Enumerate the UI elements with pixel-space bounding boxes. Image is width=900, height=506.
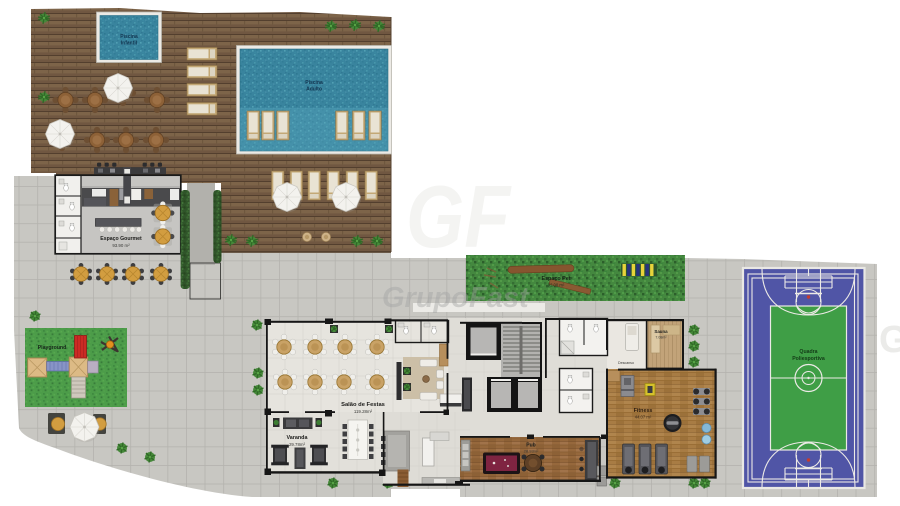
svg-text:Espaço Gourmet: Espaço Gourmet [100, 236, 142, 242]
svg-text:Varanda: Varanda [287, 435, 309, 441]
svg-text:Poliesportiva: Poliesportiva [792, 356, 825, 362]
svg-text:Quadra: Quadra [799, 349, 817, 355]
svg-text:29.78m²: 29.78m² [289, 442, 306, 447]
svg-text:Fitness: Fitness [634, 408, 653, 414]
svg-text:Piscina: Piscina [120, 34, 138, 40]
svg-text:GrupoFast: GrupoFast [382, 282, 530, 314]
svg-text:93.90 m²: 93.90 m² [112, 243, 130, 248]
svg-text:92.00 m²: 92.00 m² [548, 283, 565, 288]
svg-text:GF: GF [406, 167, 512, 266]
svg-text:Espaço Pet: Espaço Pet [541, 276, 570, 282]
svg-text:44.07 m²: 44.07 m² [635, 415, 652, 420]
svg-text:7.08m²: 7.08m² [655, 336, 667, 340]
svg-text:Salão de Festas: Salão de Festas [341, 402, 385, 408]
svg-text:Sauna: Sauna [654, 329, 668, 334]
svg-text:Adulto: Adulto [306, 87, 322, 93]
svg-text:Infantil: Infantil [121, 41, 138, 47]
svg-text:G: G [879, 319, 900, 361]
svg-text:119.28m²: 119.28m² [354, 409, 373, 414]
svg-text:Piscina: Piscina [305, 80, 323, 86]
svg-text:Playground: Playground [38, 345, 67, 351]
svg-text:28.93m²: 28.93m² [524, 449, 539, 454]
svg-text:Descanso: Descanso [618, 361, 634, 365]
